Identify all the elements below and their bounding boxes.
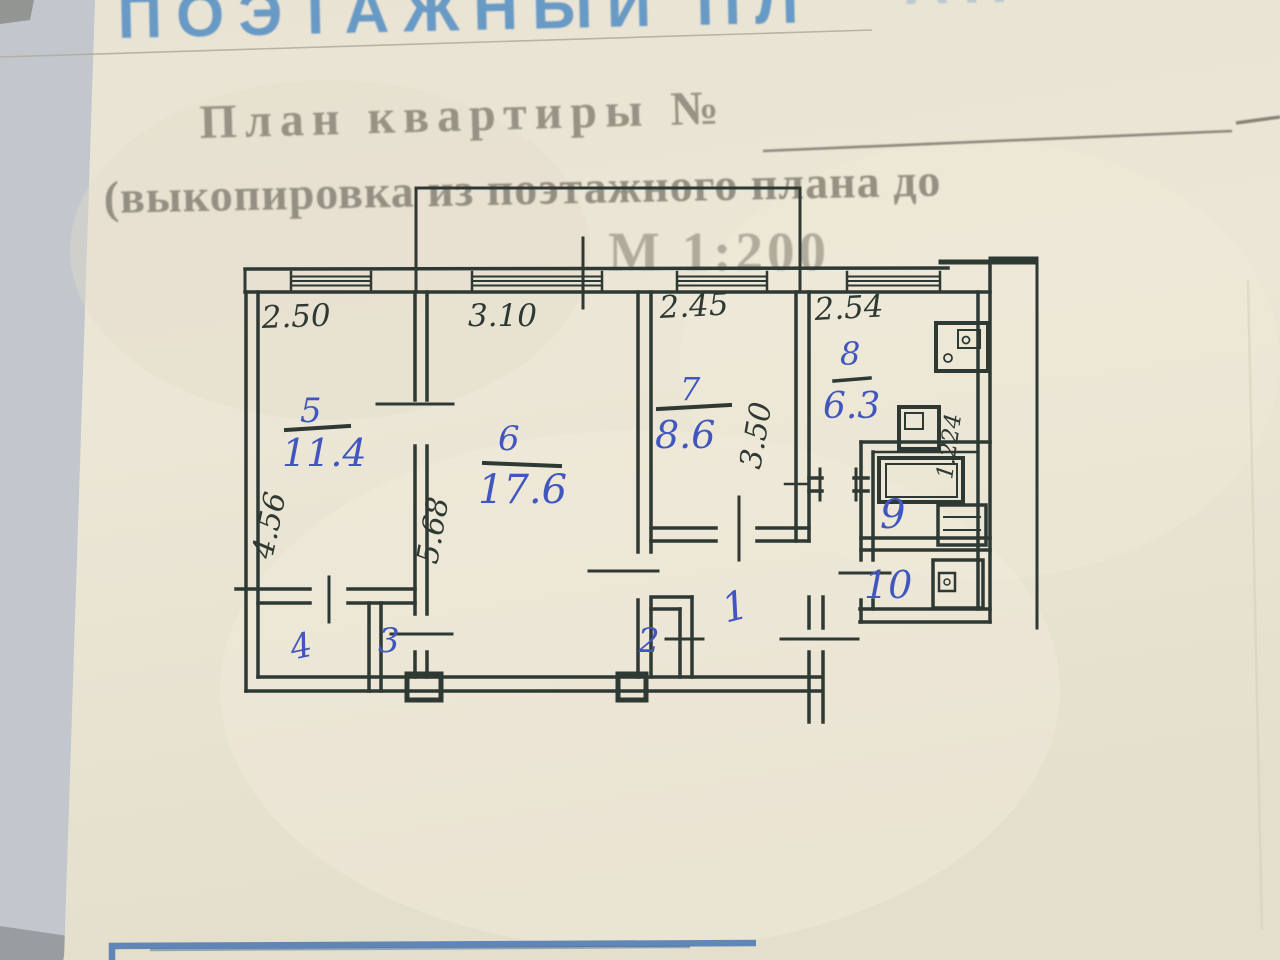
room5-number: 5 (300, 391, 322, 431)
page-top-heading-faint: АН (903, 0, 1022, 18)
dim-top-3: 2.45 (658, 286, 730, 326)
photographed-floorplan-document: ПОЭТАЖНЫЙ ПЛ АН План квартиры № (выкопир… (0, 0, 1280, 960)
dim-top-1: 2.50 (260, 298, 331, 336)
room10-number: 10 (864, 563, 912, 607)
document-canvas: ПОЭТАЖНЫЙ ПЛ АН План квартиры № (выкопир… (0, 0, 1280, 960)
room8-number: 8 (840, 335, 860, 373)
room7-number: 7 (680, 370, 701, 408)
room5-area: 11.4 (282, 431, 367, 475)
room6-area: 17.6 (478, 467, 567, 513)
room7-area: 8.6 (655, 413, 715, 457)
dim-top-2: 3.10 (468, 298, 537, 334)
room2-number: 2 (637, 621, 660, 661)
room9-number: 9 (880, 492, 905, 538)
room3-number: 3 (378, 621, 400, 661)
dim-top-4: 2.54 (813, 288, 885, 328)
room6-number: 6 (498, 419, 520, 459)
room8-area: 6.3 (823, 386, 880, 427)
plan-scale: М 1:200 (608, 221, 830, 282)
